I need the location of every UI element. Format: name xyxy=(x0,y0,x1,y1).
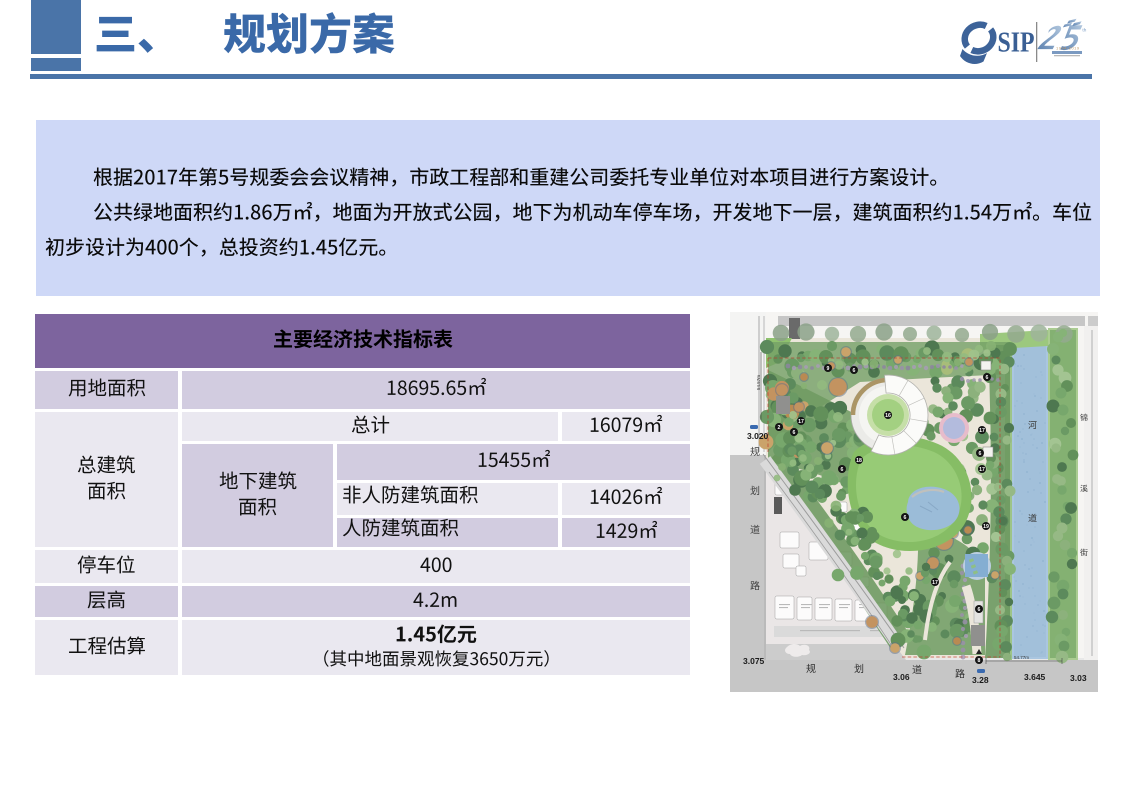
svg-text:6: 6 xyxy=(904,515,907,521)
svg-text:18: 18 xyxy=(856,458,862,464)
svg-text:2: 2 xyxy=(778,425,781,431)
svg-text:8: 8 xyxy=(978,658,981,664)
svg-text:9: 9 xyxy=(827,366,830,372)
svg-text:6: 6 xyxy=(986,375,989,381)
svg-text:6: 6 xyxy=(853,368,856,374)
svg-text:54.77m: 54.77m xyxy=(1014,655,1029,660)
svg-text:6: 6 xyxy=(793,430,796,436)
svg-text:17: 17 xyxy=(979,467,985,473)
svg-text:54.57m: 54.57m xyxy=(756,375,761,390)
svg-text:16: 16 xyxy=(885,413,891,419)
svg-text:th: th xyxy=(1082,27,1086,32)
svg-text:6: 6 xyxy=(978,607,981,613)
svg-text:6: 6 xyxy=(979,451,982,457)
svg-text:17: 17 xyxy=(979,428,985,434)
svg-text:19: 19 xyxy=(983,524,989,530)
svg-text:SIP: SIP xyxy=(998,28,1035,59)
svg-text:6: 6 xyxy=(841,467,844,473)
svg-text:17: 17 xyxy=(932,580,938,586)
svg-text:1994-2019: 1994-2019 xyxy=(1056,46,1080,51)
svg-text:17: 17 xyxy=(798,419,804,425)
